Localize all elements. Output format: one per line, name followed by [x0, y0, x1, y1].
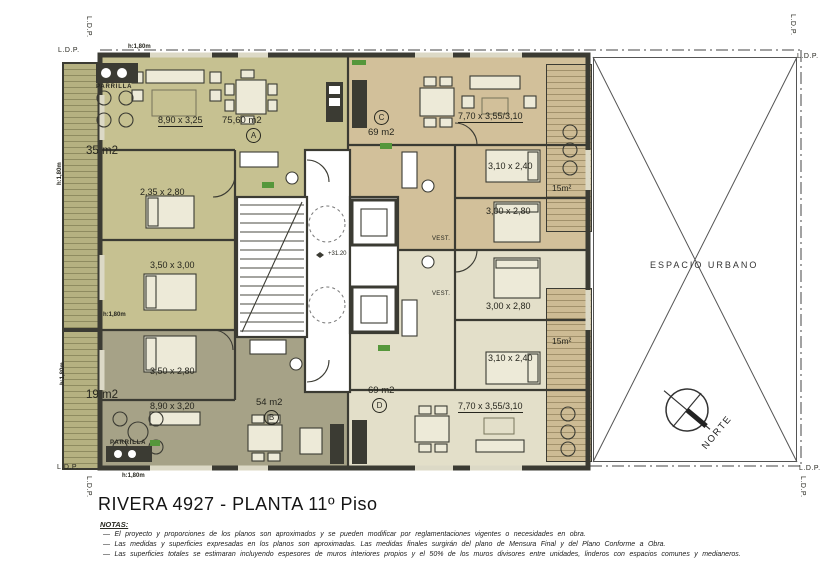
unit-c-vest-label: VEST.: [432, 236, 450, 242]
sheet: L.D.P. L.D.P. h:1,80m L.D.P. L.D.P. L.D.…: [0, 0, 828, 585]
core: [237, 150, 398, 392]
unit-d-bed2-dim: 3,10 x 2,40: [488, 354, 533, 363]
unit-d-vest-label: VEST.: [432, 291, 450, 297]
notes-heading: NOTAS:: [100, 520, 128, 529]
height-label-bottom: h:1,80m: [122, 473, 145, 479]
unit-a-living-dim: 8,90 x 3,25: [158, 116, 203, 127]
unit-b-badge: B: [264, 410, 279, 425]
unit-b-living-dim: 8,90 x 3,20: [150, 402, 195, 411]
unit-a-bed2-dim: 3,50 x 3,00: [150, 261, 195, 270]
unit-a-badge: A: [246, 128, 261, 143]
unit-d-badge: D: [372, 398, 387, 413]
height-label-mid: h:1,80m: [103, 312, 126, 318]
height-label-left-1: h:1,80m: [57, 162, 63, 185]
unit-b-bed1-dim: 3,50 x 2,80: [150, 367, 195, 376]
unit-c-bed2-dim: 3,00 x 2,80: [486, 207, 531, 216]
page-title: RIVERA 4927 - PLANTA 11º Piso: [98, 494, 378, 515]
ldp-top-left: L.D.P.: [58, 47, 80, 54]
ldp-bottom-right: L.D.P.: [799, 465, 821, 472]
unit-d-living-dim: 7,70 x 3,55/3,10: [458, 402, 523, 413]
parrilla-label-bottom: PARRILLA: [110, 440, 146, 446]
unit-c-bed1-dim: 3,10 x 2,40: [488, 162, 533, 171]
ldp-top-right-vertical: L.D.P.: [789, 14, 796, 36]
espacio-urbano-label: ESPACIO URBANO: [650, 261, 758, 270]
note-line: — Las medidas y superficies expresadas e…: [103, 541, 827, 550]
unit-c-area: 69 m2: [368, 128, 394, 138]
unit-d-area: 69 m2: [368, 386, 394, 396]
elevator-2: [352, 287, 396, 332]
balcony-top-area-label: 15m²: [552, 184, 571, 193]
ldp-bottom-left-vertical: L.D.P.: [85, 476, 92, 498]
ldp-top-left-vertical: L.D.P.: [85, 16, 92, 38]
height-label-left-2: h:1,80m: [60, 362, 66, 385]
ldp-top-right: L.D.P.: [797, 53, 819, 60]
terrace-top-area-label: 35 m2: [86, 146, 118, 158]
unit-c-living-dim: 7,70 x 3,55/3,10: [458, 112, 523, 123]
note-line: — Las superficies totales se estimaran i…: [103, 551, 827, 560]
balcony-bottom-area-label: 15m²: [552, 337, 571, 346]
height-label-top: h:1,80m: [128, 44, 151, 50]
unit-a-bed1-dim: 2,35 x 2,80: [140, 188, 185, 197]
level-marker-label: +31.20: [328, 251, 347, 257]
unit-c-badge: C: [374, 110, 389, 125]
unit-b-area: 54 m2: [256, 398, 282, 408]
terrace-bottom-area-label: 19 m2: [86, 390, 118, 402]
unit-d-bed1-dim: 3,00 x 2,80: [486, 302, 531, 311]
ldp-bottom-right-vertical: L.D.P.: [799, 476, 806, 498]
note-line: — El proyecto y proporciones de los plan…: [103, 531, 827, 540]
unit-a-area: 75,60 m2: [222, 116, 262, 126]
elevator-1: [352, 200, 396, 245]
parrilla-label-top: PARRILLA: [96, 84, 132, 90]
ldp-bottom-left: L.D.P.: [57, 464, 79, 471]
